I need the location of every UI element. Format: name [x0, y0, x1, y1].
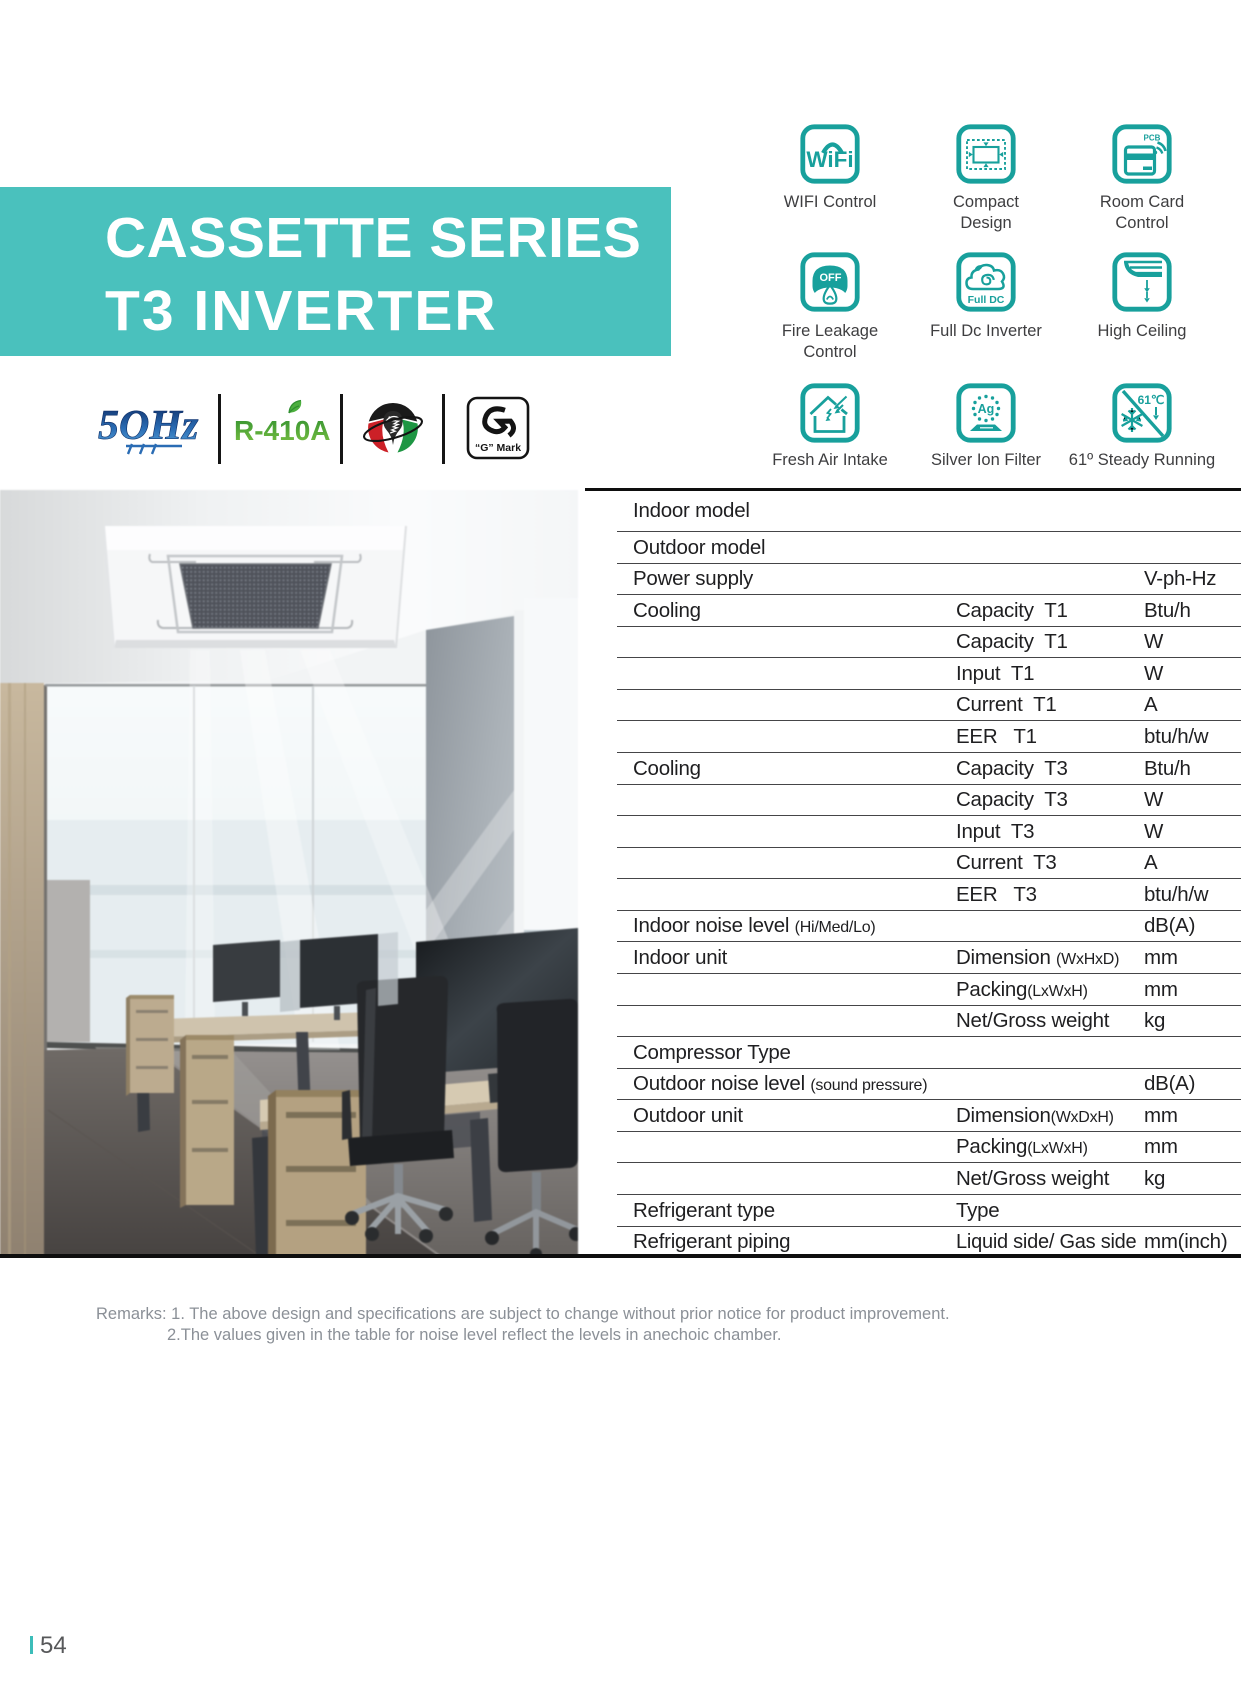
svg-text:5OHz: 5OHz [98, 403, 199, 449]
svg-text:PCB: PCB [1144, 134, 1161, 143]
svg-text:WiFi: WiFi [806, 147, 853, 172]
svg-text:61℃: 61℃ [1138, 393, 1165, 407]
svg-text:Full DC: Full DC [968, 294, 1005, 306]
svg-text:“G” Mark: “G” Mark [475, 442, 521, 454]
svg-text:Ag: Ag [978, 402, 995, 416]
svg-text:OFF: OFF [820, 272, 842, 284]
svg-text:R-410A: R-410A [234, 415, 330, 446]
